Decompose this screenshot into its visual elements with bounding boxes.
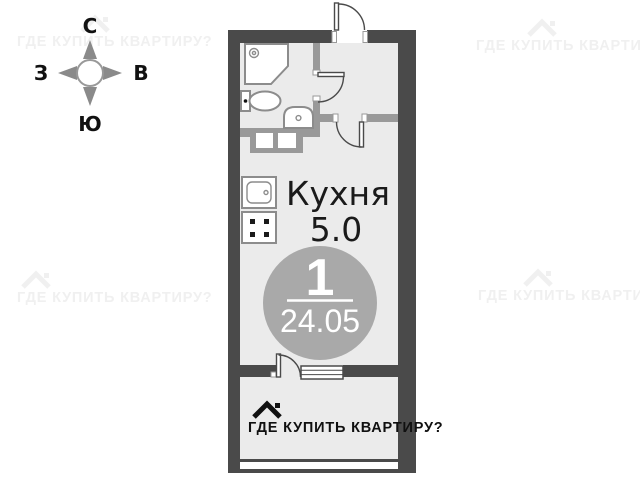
compass-east-arrow [103,66,122,80]
sink-basin [284,107,313,128]
compass-north-label: С [83,14,98,38]
window-frame [301,366,343,379]
toilet-bowl [250,92,281,111]
bathroom-sink [284,107,313,128]
toilet-valve-icon [244,99,248,103]
compass-west-label: З [34,61,48,85]
compass-south-arrow [83,87,97,106]
kitchen-sink [242,177,276,208]
balcony-window [301,366,343,379]
vent-opening [256,133,273,148]
compass-south-label: Ю [78,112,101,136]
room-label: Кухня [286,174,390,213]
burner-icon [250,232,255,237]
burner-icon [264,232,269,237]
door-leaf [318,73,344,77]
badge-total-area: 24.05 [280,303,360,339]
balcony-wall-right [343,365,398,377]
door-leaf [360,122,364,147]
room-area: 5.0 [310,210,362,249]
door-jamb [362,114,367,122]
door-swing-arc [339,4,365,30]
door-jamb [313,96,320,101]
vent-shaft [250,128,303,153]
left-wall [228,30,240,473]
entrance-door [332,3,368,43]
toilet [241,91,281,111]
burner-icon [264,219,269,224]
balcony-wall-left [228,365,276,377]
vent-opening [278,133,296,148]
compass-circle [77,60,103,86]
stove [242,212,276,243]
door-leaf [277,354,281,377]
burner-icon [250,219,255,224]
area-badge: 1 24.05 [263,246,377,360]
compass: С Ю З В [34,14,149,136]
compass-west-arrow [58,66,77,80]
door-jamb [333,114,338,122]
door-leaf [335,3,339,30]
compass-east-label: В [133,61,148,85]
door-jamb [363,32,368,43]
compass-north-arrow [83,40,97,59]
right-wall [398,30,416,473]
door-jamb [332,32,337,43]
balcony-glazing [240,462,398,469]
floor-plan: С Ю З В [0,0,640,480]
door-jamb [271,372,276,377]
apartment: Кухня 5.0 1 24.05 [228,3,416,473]
top-wall-right [367,30,416,43]
stove-body [242,212,276,243]
badge-rooms: 1 [306,249,335,307]
top-wall-left [228,30,332,43]
